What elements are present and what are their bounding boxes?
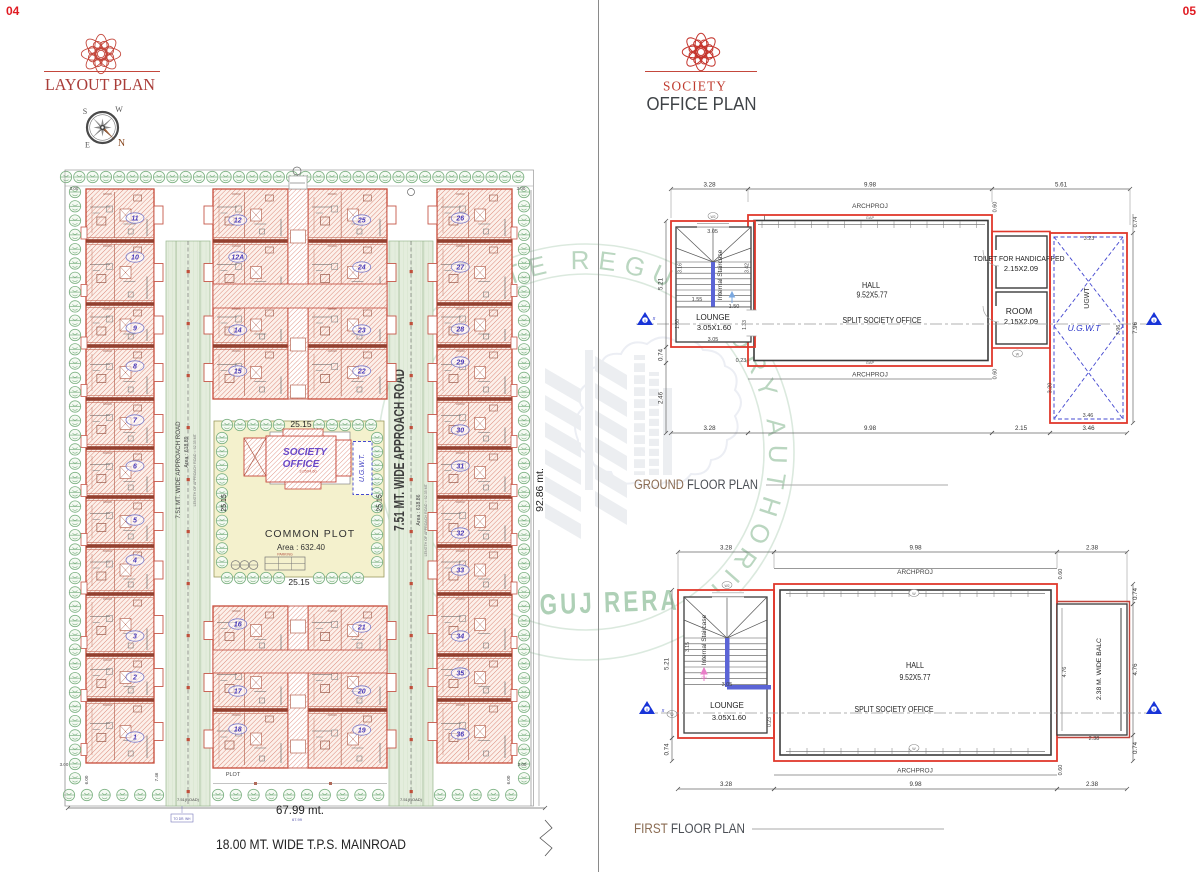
svg-text:W: W [115, 105, 123, 114]
svg-text:2.15X2.09: 2.15X2.09 [1004, 264, 1038, 273]
svg-text:25.15: 25.15 [288, 577, 310, 587]
svg-text:3.46: 3.46 [1083, 413, 1094, 419]
svg-text:3.00: 3.00 [70, 186, 79, 191]
svg-text:0.74: 0.74 [1132, 741, 1139, 754]
svg-text:2.38 M. WIDE BALC: 2.38 M. WIDE BALC [1096, 638, 1103, 700]
svg-text:2.38: 2.38 [1089, 736, 1100, 742]
svg-text:25.15: 25.15 [377, 494, 384, 512]
svg-text:6: 6 [133, 463, 137, 470]
svg-text:OFFICE PLAN: OFFICE PLAN [647, 94, 757, 114]
svg-text:7.96: 7.96 [1132, 321, 1139, 334]
svg-text:FIRST FLOOR PLAN: FIRST FLOOR PLAN [634, 821, 745, 836]
svg-text:0.74: 0.74 [1133, 217, 1139, 228]
svg-text:11: 11 [131, 215, 138, 222]
svg-text:Area : 632.40: Area : 632.40 [277, 543, 326, 552]
svg-text:1: 1 [133, 734, 137, 741]
svg-text:26: 26 [455, 215, 464, 222]
svg-text:LOUNGE: LOUNGE [696, 313, 730, 322]
svg-text:ARCHPROJ: ARCHPROJ [897, 569, 933, 576]
svg-text:7.51 MT. WIDE APPROACH ROAD: 7.51 MT. WIDE APPROACH ROAD [175, 421, 182, 519]
svg-text:3.05: 3.05 [707, 229, 718, 235]
svg-text:3.28: 3.28 [720, 781, 733, 788]
svg-text:0.60: 0.60 [993, 369, 999, 380]
svg-text:2.38: 2.38 [1086, 545, 1099, 552]
svg-text:W2: W2 [724, 584, 729, 588]
svg-text:04: 04 [6, 4, 20, 18]
svg-text:25.15: 25.15 [221, 494, 228, 512]
svg-text:GROUND FLOOR PLAN: GROUND FLOOR PLAN [634, 477, 758, 492]
svg-text:HALL: HALL [906, 660, 924, 670]
svg-text:1.50: 1.50 [729, 304, 740, 310]
svg-text:3.05X1.60: 3.05X1.60 [712, 713, 746, 722]
svg-text:9.52X5.77: 9.52X5.77 [857, 291, 888, 300]
svg-text:PLOT: PLOT [226, 772, 241, 778]
svg-text:14: 14 [234, 327, 242, 334]
svg-text:ARCHPROJ: ARCHPROJ [852, 203, 888, 210]
svg-text:33: 33 [456, 567, 464, 574]
svg-text:4: 4 [132, 557, 137, 564]
svg-text:0.60: 0.60 [1058, 765, 1064, 776]
svg-text:9.98: 9.98 [864, 182, 877, 189]
svg-text:9.98: 9.98 [909, 545, 922, 552]
svg-text:6.00: 6.00 [506, 775, 511, 784]
svg-text:30: 30 [456, 427, 464, 434]
svg-text:23: 23 [357, 327, 366, 334]
svg-text:22: 22 [357, 368, 366, 375]
svg-text:12A: 12A [231, 254, 244, 261]
svg-text:0.23: 0.23 [767, 717, 773, 727]
svg-text:15: 15 [234, 368, 242, 375]
svg-text:67.99 mt.: 67.99 mt. [276, 805, 324, 817]
svg-text:12: 12 [234, 217, 242, 224]
svg-text:3.00: 3.00 [60, 762, 69, 767]
svg-text:9.98: 9.98 [909, 781, 922, 788]
svg-text:25.15: 25.15 [290, 419, 312, 429]
svg-text:ARCHPROJ: ARCHPROJ [897, 768, 933, 775]
svg-text:92.86 mt.: 92.86 mt. [534, 468, 546, 512]
svg-text:W: W [912, 747, 916, 751]
svg-text:ARCHPROJ: ARCHPROJ [852, 372, 888, 379]
svg-text:W2: W2 [710, 215, 715, 219]
svg-text:16: 16 [234, 621, 242, 628]
svg-text:21: 21 [357, 624, 366, 631]
svg-text:W: W [912, 592, 916, 596]
svg-text:28: 28 [455, 326, 464, 333]
svg-text:SPLIT SOCIETY OFFICE: SPLIT SOCIETY OFFICE [843, 315, 922, 325]
svg-text:SOCIETY: SOCIETY [283, 447, 328, 458]
svg-text:3.05: 3.05 [708, 337, 719, 343]
svg-text:8: 8 [133, 363, 137, 370]
svg-text:5.21: 5.21 [664, 657, 671, 670]
svg-text:HALL: HALL [862, 280, 880, 290]
svg-text:20: 20 [357, 688, 366, 695]
svg-text:2: 2 [132, 674, 137, 681]
svg-text:U.G.W.T: U.G.W.T [1068, 323, 1102, 333]
svg-text:2.15X2.09: 2.15X2.09 [1004, 317, 1038, 326]
svg-text:0.60: 0.60 [1058, 569, 1064, 580]
svg-text:LENGTH OF APPROACH ROAD = 62.3: LENGTH OF APPROACH ROAD = 62.35 MT. [424, 483, 428, 556]
svg-text:6.00: 6.00 [84, 775, 89, 784]
svg-text:DN: DN [701, 676, 707, 680]
svg-text:COMMON PLOT: COMMON PLOT [265, 528, 355, 540]
svg-text:LENGTH OF APPROACH ROAD = 62.3: LENGTH OF APPROACH ROAD = 62.35 MT. [193, 433, 197, 506]
svg-text:LOUNGE: LOUNGE [710, 701, 744, 710]
svg-text:3.05X4.60: 3.05X4.60 [299, 470, 316, 474]
svg-text:Area : 618.86: Area : 618.86 [416, 494, 422, 525]
svg-text:5.61: 5.61 [1055, 182, 1068, 189]
svg-text:9: 9 [133, 325, 137, 332]
svg-text:36: 36 [456, 731, 464, 738]
svg-text:3.28: 3.28 [703, 182, 716, 189]
svg-text:2.15: 2.15 [1015, 425, 1028, 432]
svg-text:32: 32 [456, 530, 464, 537]
svg-text:5.21: 5.21 [658, 277, 665, 290]
svg-text:OFFICE: OFFICE [283, 459, 320, 470]
svg-text:3.00: 3.00 [518, 762, 527, 767]
svg-text:E: E [85, 141, 90, 150]
svg-text:18.00 MT. WIDE T.P.S. MAINROAD: 18.00 MT. WIDE T.P.S. MAINROAD [216, 837, 406, 852]
svg-text:0.74: 0.74 [1132, 587, 1139, 600]
svg-text:7.51(ROAD): 7.51(ROAD) [177, 797, 200, 802]
svg-text:GAP: GAP [866, 360, 875, 365]
svg-text:TO DR. WH: TO DR. WH [174, 817, 192, 821]
svg-text:7.51 MT. WIDE APPROACH ROAD: 7.51 MT. WIDE APPROACH ROAD [392, 369, 408, 531]
svg-text:3.46: 3.46 [1082, 425, 1095, 432]
svg-text:TOILET FOR HANDICAPPED: TOILET FOR HANDICAPPED [974, 254, 1065, 263]
svg-text:3.20: 3.20 [1048, 383, 1054, 394]
svg-text:x: x [652, 316, 656, 322]
svg-text:N: N [118, 138, 125, 149]
svg-text:Area : 618.89: Area : 618.89 [184, 436, 190, 467]
svg-text:1.55: 1.55 [692, 297, 703, 303]
svg-text:05: 05 [1183, 4, 1197, 18]
svg-text:3.16: 3.16 [678, 263, 684, 273]
svg-text:4.76: 4.76 [1062, 667, 1068, 678]
svg-text:2.46: 2.46 [658, 391, 665, 404]
svg-text:3: 3 [133, 633, 137, 640]
svg-text:0.74: 0.74 [664, 743, 671, 756]
svg-text:Internal Staircase: Internal Staircase [717, 249, 724, 300]
svg-text:S: S [83, 107, 87, 116]
svg-text:19: 19 [358, 727, 366, 734]
svg-text:17: 17 [234, 688, 243, 695]
svg-text:UGWT: UGWT [1084, 287, 1091, 309]
svg-text:3.15: 3.15 [685, 642, 691, 652]
svg-text:0.74: 0.74 [658, 348, 665, 361]
svg-text:3.28: 3.28 [703, 425, 716, 432]
svg-text:PARKING: PARKING [277, 553, 293, 557]
svg-text:67.99: 67.99 [292, 817, 303, 822]
svg-text:LAYOUT PLAN: LAYOUT PLAN [45, 75, 155, 94]
svg-text:U.G.W.T.: U.G.W.T. [359, 454, 366, 482]
svg-text:SOCIETY: SOCIETY [663, 80, 727, 95]
svg-text:0.23: 0.23 [736, 358, 747, 364]
svg-text:24: 24 [357, 264, 366, 271]
svg-text:ROOM: ROOM [1006, 306, 1032, 316]
svg-text:3.42: 3.42 [745, 263, 751, 273]
svg-text:Internal Staircase: Internal Staircase [701, 614, 708, 665]
svg-text:27: 27 [455, 264, 465, 271]
svg-text:7.46: 7.46 [154, 772, 159, 781]
svg-text:29: 29 [455, 359, 464, 366]
svg-text:x: x [661, 708, 665, 714]
svg-text:31: 31 [456, 463, 464, 470]
svg-text:18: 18 [234, 726, 242, 733]
svg-text:4.76: 4.76 [1132, 663, 1139, 676]
svg-text:34: 34 [456, 633, 464, 640]
svg-text:7.96: 7.96 [1116, 325, 1122, 336]
svg-text:5: 5 [133, 517, 137, 524]
svg-text:3.23: 3.23 [1084, 236, 1095, 242]
svg-text:W: W [1016, 353, 1020, 357]
svg-text:25: 25 [357, 217, 366, 224]
svg-text:0.60: 0.60 [993, 202, 999, 213]
svg-text:GUJ RERA: GUJ RERA [539, 585, 680, 622]
svg-text:3.28: 3.28 [720, 545, 733, 552]
svg-text:SPLIT SOCIETY OFFICE: SPLIT SOCIETY OFFICE [855, 704, 934, 714]
svg-text:9.52X5.77: 9.52X5.77 [900, 673, 931, 682]
svg-text:7.51(ROAD): 7.51(ROAD) [400, 797, 423, 802]
svg-text:3.00: 3.00 [517, 186, 526, 191]
svg-text:9.98: 9.98 [864, 425, 877, 432]
svg-text:10: 10 [131, 254, 139, 261]
svg-text:3.05: 3.05 [722, 682, 733, 688]
svg-text:35: 35 [456, 670, 464, 677]
svg-text:2.38: 2.38 [1086, 781, 1099, 788]
